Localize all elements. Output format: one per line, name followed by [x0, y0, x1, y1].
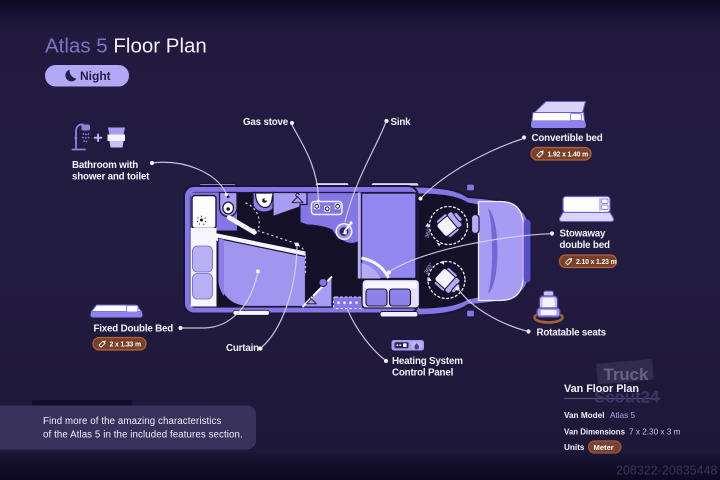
- svg-text:Convertible bed: Convertible bed: [532, 133, 603, 144]
- svg-text:Curtain: Curtain: [226, 343, 259, 354]
- svg-text:Fixed Double Bed: Fixed Double Bed: [94, 324, 174, 335]
- svg-text:Night: Night: [80, 69, 111, 83]
- svg-text:2 x 1.33 m: 2 x 1.33 m: [110, 342, 141, 349]
- svg-text:1.92 x 1.40 m: 1.92 x 1.40 m: [548, 152, 589, 159]
- svg-text:Stowaway: Stowaway: [560, 229, 607, 240]
- svg-text:208322-20835448: 208322-20835448: [616, 464, 718, 478]
- svg-text:Van Floor Plan: Van Floor Plan: [564, 383, 639, 395]
- svg-text:Bathroom with: Bathroom with: [72, 160, 138, 171]
- svg-text:Truck: Truck: [604, 365, 649, 384]
- svg-text:7 x 2.30 x 3 m: 7 x 2.30 x 3 m: [629, 428, 681, 437]
- svg-text:shower and toilet: shower and toilet: [72, 172, 150, 183]
- svg-text:Heating System: Heating System: [392, 356, 463, 367]
- svg-text:Units: Units: [564, 443, 585, 452]
- svg-text:Atlas 5 Floor Plan: Atlas 5 Floor Plan: [45, 35, 207, 58]
- svg-text:Rotatable seats: Rotatable seats: [537, 328, 607, 339]
- svg-text:Van Dimensions: Van Dimensions: [564, 428, 626, 437]
- svg-text:Sink: Sink: [391, 117, 412, 128]
- svg-text:Find more of the amazing chara: Find more of the amazing characteristics: [43, 416, 222, 427]
- svg-text:Van Model: Van Model: [564, 411, 605, 420]
- svg-text:Meter: Meter: [594, 443, 614, 452]
- svg-text:Control Panel: Control Panel: [392, 368, 454, 379]
- svg-text:Gas stove: Gas stove: [243, 117, 289, 128]
- svg-text:of the Atlas 5 in the included: of the Atlas 5 in the included features …: [43, 430, 243, 441]
- svg-text:double bed: double bed: [560, 240, 610, 251]
- svg-text:2.10 x 1.23 m: 2.10 x 1.23 m: [576, 259, 617, 266]
- svg-text:Atlas 5: Atlas 5: [610, 411, 635, 420]
